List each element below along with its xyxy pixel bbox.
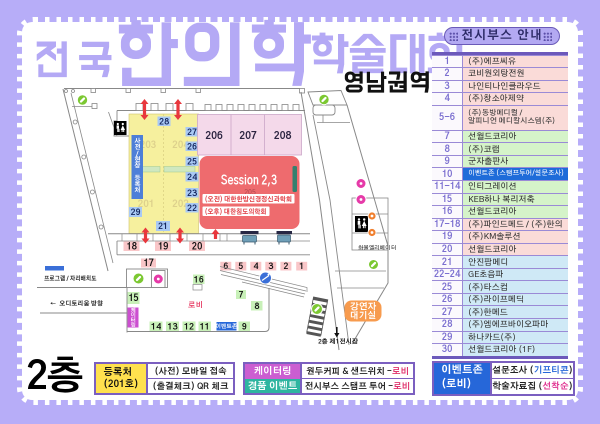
- svg-text:13: 13: [168, 322, 178, 331]
- svg-text:23: 23: [186, 189, 197, 198]
- svg-text:프로그램 / 자리배치도: 프로그램 / 자리배치도: [44, 275, 97, 283]
- svg-text:208: 208: [274, 131, 293, 142]
- svg-text:206: 206: [205, 131, 224, 142]
- svg-text:이벤트존: 이벤트존: [216, 323, 238, 330]
- svg-text:26: 26: [186, 142, 197, 151]
- svg-text:11: 11: [200, 322, 210, 331]
- svg-text:2층 제1전시장: 2층 제1전시장: [317, 338, 358, 346]
- svg-text:화물엘리베이터: 화물엘리베이터: [358, 245, 396, 252]
- svg-text:16: 16: [194, 275, 204, 284]
- svg-text:대기실: 대기실: [350, 311, 376, 321]
- svg-text:사전/현장 등록처: 사전/현장 등록처: [134, 138, 141, 194]
- svg-text:4: 4: [253, 262, 258, 271]
- svg-text:25: 25: [186, 157, 197, 166]
- svg-text:Session 2,3: Session 2,3: [221, 175, 277, 188]
- svg-text:8: 8: [254, 302, 259, 311]
- svg-text:22: 22: [186, 204, 197, 213]
- svg-text:15: 15: [128, 294, 139, 303]
- svg-text:12: 12: [184, 322, 194, 331]
- svg-text:9: 9: [242, 322, 247, 331]
- svg-text:6: 6: [223, 262, 228, 271]
- svg-text:18: 18: [126, 242, 137, 251]
- svg-text:2: 2: [282, 262, 288, 271]
- svg-text:29: 29: [130, 208, 141, 217]
- svg-text:강연자: 강연자: [350, 302, 377, 312]
- svg-text:← 오디토리움 방향: ← 오디토리움 방향: [50, 300, 103, 308]
- svg-text:207: 207: [239, 131, 257, 142]
- svg-text:21: 21: [157, 222, 168, 231]
- svg-text:5: 5: [238, 262, 243, 271]
- svg-text:20: 20: [192, 242, 203, 251]
- svg-text:1: 1: [299, 262, 304, 271]
- svg-text:3: 3: [267, 262, 273, 271]
- svg-text:17: 17: [143, 259, 154, 268]
- svg-text:14: 14: [151, 322, 161, 331]
- svg-text:28: 28: [158, 117, 169, 126]
- svg-text:케이터링: 케이터링: [131, 308, 136, 329]
- svg-text:7: 7: [239, 291, 244, 300]
- svg-text:로비: 로비: [188, 302, 203, 310]
- svg-text:27: 27: [186, 128, 197, 137]
- svg-text:19: 19: [158, 242, 169, 251]
- svg-text:24: 24: [186, 173, 197, 182]
